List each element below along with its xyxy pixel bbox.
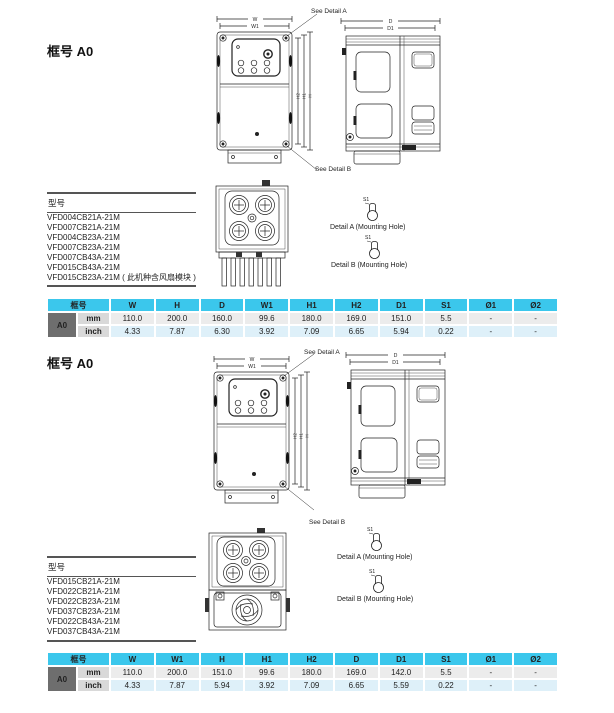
col-header: H [200, 652, 245, 666]
table-cell: - [513, 666, 558, 679]
front-view-drawing-2 [192, 352, 317, 520]
table-cell: 6.30 [200, 325, 245, 338]
detail-b-label-1: Detail B (Mounting Hole) [331, 262, 407, 269]
model-list-title: 型号 [47, 194, 196, 212]
model-item: VFD007CB23A-21M [47, 243, 196, 253]
unit-cell: inch [77, 325, 110, 338]
keyhole-detail-b-1: S1 [362, 234, 386, 264]
table-cell: 7.09 [289, 325, 334, 338]
table-cell: 142.0 [379, 666, 424, 679]
section-1-heading: 框号 A0 [47, 41, 93, 60]
unit-cell: mm [77, 312, 110, 325]
dimension-table-2: 框号 W W1 H H1 H2 D D1 S1 Ø1 Ø2 A0 mm 110.… [47, 652, 558, 692]
model-item: VFD022CB43A-21M [47, 617, 196, 627]
table-cell: 7.09 [289, 679, 334, 692]
col-header: D [200, 298, 245, 312]
col-header: W1 [155, 652, 200, 666]
table-cell: 3.92 [244, 325, 289, 338]
see-detail-b-label-1: See Detail B [315, 166, 351, 173]
col-header: Ø1 [468, 298, 513, 312]
unit-cell: mm [77, 666, 110, 679]
table-cell: 169.0 [334, 312, 379, 325]
model-list-title: 型号 [47, 558, 196, 576]
col-header: Ø2 [513, 298, 558, 312]
table-cell: 0.22 [424, 679, 469, 692]
model-item: VFD037CB23A-21M [47, 607, 196, 617]
table-cell: 180.0 [289, 312, 334, 325]
model-list-1: 型号 VFD004CB21A-21M VFD007CB21A-21M VFD00… [47, 192, 196, 287]
bottom-view-drawing-2 [205, 528, 290, 636]
model-item: VFD022CB23A-21M [47, 597, 196, 607]
model-list-2: 型号 VFD015CB21A-21M VFD022CB21A-21M VFD02… [47, 556, 196, 642]
manual-page: W W1 [0, 0, 614, 713]
s1-label: S1 [367, 527, 373, 533]
detail-a-label-1: Detail A (Mounting Hole) [330, 224, 405, 231]
col-header: S1 [424, 298, 469, 312]
table-cell: 4.33 [110, 679, 155, 692]
keyhole-detail-a-2: S1 [364, 526, 388, 556]
table-cell: - [513, 312, 558, 325]
frame-cell: A0 [47, 666, 77, 692]
table-cell: 3.92 [244, 679, 289, 692]
col-header: W [110, 298, 155, 312]
s1-label: S1 [363, 197, 369, 203]
s1-label: S1 [369, 569, 375, 575]
col-header: D [334, 652, 379, 666]
table-cell: 7.87 [155, 325, 200, 338]
col-header: H2 [334, 298, 379, 312]
table-cell: 7.87 [155, 679, 200, 692]
see-detail-b-label-2: See Detail B [309, 519, 345, 526]
table-cell: - [513, 325, 558, 338]
dimension-table-1: 框号 W H D W1 H1 H2 D1 S1 Ø1 Ø2 A0 mm 110.… [47, 298, 558, 338]
keyhole-detail-b-2: S1 [366, 568, 390, 598]
col-header: Ø1 [468, 652, 513, 666]
col-header: H1 [244, 652, 289, 666]
model-item: VFD015CB21A-21M [47, 577, 196, 587]
table-cell: 5.94 [379, 325, 424, 338]
side-view-drawing-1 [338, 16, 443, 168]
unit-cell: inch [77, 679, 110, 692]
col-header-frame: 框号 [47, 652, 110, 666]
model-item: VFD022CB21A-21M [47, 587, 196, 597]
model-item: VFD015CB23A-21M ( 此机种含风扇模块 ) [47, 273, 196, 283]
table-cell: 151.0 [200, 666, 245, 679]
model-item: VFD037CB43A-21M [47, 627, 196, 637]
col-header: S1 [424, 652, 469, 666]
model-item: VFD007CB43A-21M [47, 253, 196, 263]
col-header: D1 [379, 652, 424, 666]
table-cell: 6.65 [334, 679, 379, 692]
s1-label: S1 [365, 235, 371, 241]
table-cell: 110.0 [110, 666, 155, 679]
col-header: D1 [379, 298, 424, 312]
table-cell: - [468, 679, 513, 692]
col-header: H1 [289, 298, 334, 312]
table-cell: 110.0 [110, 312, 155, 325]
col-header: W1 [244, 298, 289, 312]
model-item: VFD004CB23A-21M [47, 233, 196, 243]
table-cell: 5.59 [379, 679, 424, 692]
front-view-drawing-1 [195, 12, 320, 180]
model-item: VFD015CB43A-21M [47, 263, 196, 273]
col-header: W [110, 652, 155, 666]
table-cell: 151.0 [379, 312, 424, 325]
divider [47, 285, 196, 287]
bottom-view-drawing-1 [212, 180, 292, 292]
table-cell: 200.0 [155, 666, 200, 679]
frame-cell: A0 [47, 312, 77, 338]
table-cell: 5.94 [200, 679, 245, 692]
col-header: Ø2 [513, 652, 558, 666]
table-cell: 160.0 [200, 312, 245, 325]
table-cell: 5.5 [424, 312, 469, 325]
col-header: H [155, 298, 200, 312]
table-cell: 4.33 [110, 325, 155, 338]
section-2-heading: 框号 A0 [47, 353, 93, 372]
divider [47, 640, 196, 642]
table-cell: 0.22 [424, 325, 469, 338]
table-cell: - [468, 325, 513, 338]
col-header-frame: 框号 [47, 298, 110, 312]
see-detail-a-label-2: See Detail A [304, 349, 340, 356]
col-header: H2 [289, 652, 334, 666]
table-cell: - [468, 312, 513, 325]
detail-b-label-2: Detail B (Mounting Hole) [337, 596, 413, 603]
table-cell: 200.0 [155, 312, 200, 325]
table-cell: 180.0 [289, 666, 334, 679]
keyhole-detail-a-1: S1 [360, 196, 384, 226]
model-item: VFD004CB21A-21M [47, 213, 196, 223]
table-cell: 5.5 [424, 666, 469, 679]
detail-a-label-2: Detail A (Mounting Hole) [337, 554, 412, 561]
see-detail-a-label-1: See Detail A [311, 8, 347, 15]
table-cell: 169.0 [334, 666, 379, 679]
table-cell: - [468, 666, 513, 679]
side-view-drawing-2 [343, 350, 448, 502]
table-cell: - [513, 679, 558, 692]
table-cell: 99.6 [244, 666, 289, 679]
table-cell: 6.65 [334, 325, 379, 338]
table-cell: 99.6 [244, 312, 289, 325]
model-item: VFD007CB21A-21M [47, 223, 196, 233]
